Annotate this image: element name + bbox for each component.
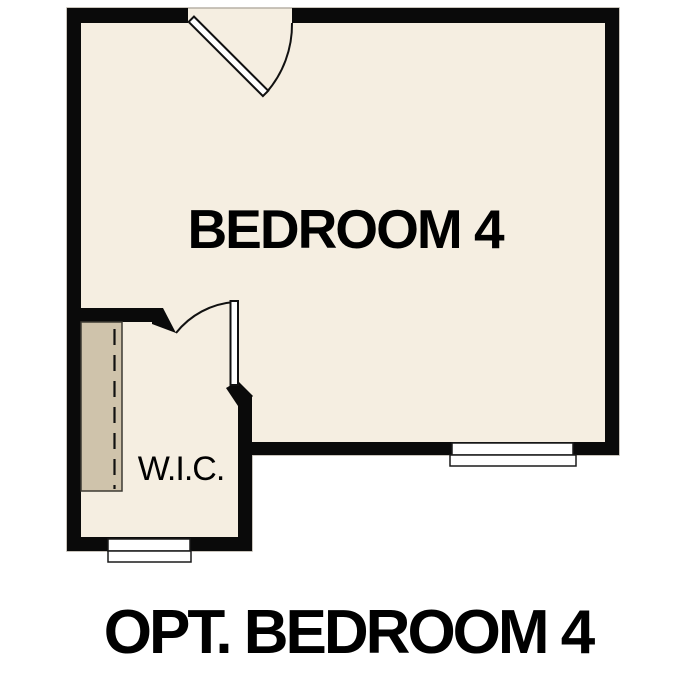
floor-plan-canvas: BEDROOM 4 W.I.C. OPT. BEDROOM 4	[0, 0, 687, 687]
wall-top-right	[292, 8, 619, 23]
floor-plan-figure: BEDROOM 4 W.I.C. OPT. BEDROOM 4	[0, 0, 687, 687]
wall-wic-right	[238, 395, 252, 551]
wall-left	[67, 8, 81, 551]
window-wic-outer	[108, 539, 190, 551]
room-label: BEDROOM 4	[187, 198, 505, 260]
window-bedroom-outer	[452, 443, 573, 455]
closet-label: W.I.C.	[138, 450, 225, 488]
wall-top-left	[67, 8, 188, 23]
wall-right	[605, 8, 619, 455]
wall-wic-top	[67, 308, 152, 322]
door-leaf-wic	[231, 301, 239, 385]
closet-shelf	[81, 322, 122, 491]
window-wic-sill	[108, 551, 191, 562]
window-bedroom-sill	[450, 455, 576, 466]
plan-caption: OPT. BEDROOM 4	[104, 598, 596, 667]
closet-fixtures	[81, 322, 122, 491]
